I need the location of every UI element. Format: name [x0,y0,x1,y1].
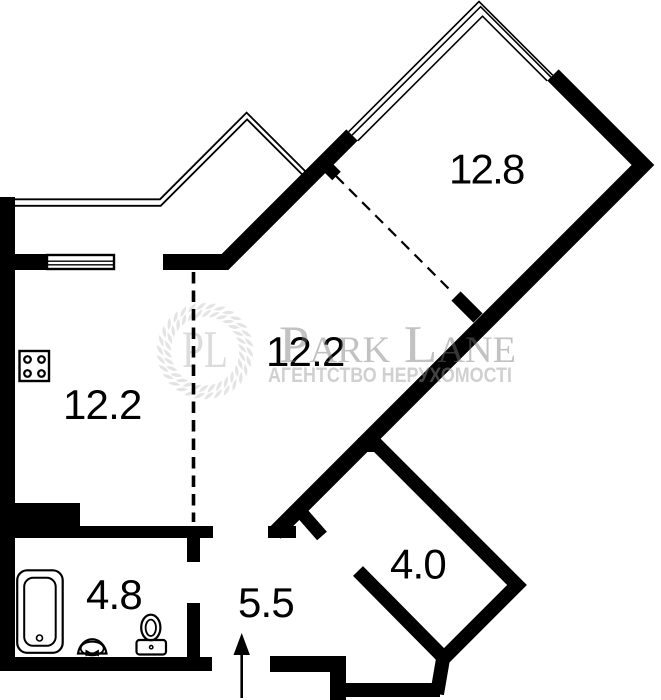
svg-text:12.8: 12.8 [449,146,524,193]
svg-text:4.0: 4.0 [390,541,446,588]
svg-text:4.8: 4.8 [86,571,142,618]
svg-text:12.2: 12.2 [63,381,142,428]
svg-text:АГЕНТСТВО НЕРУХОМОСТІ: АГЕНТСТВО НЕРУХОМОСТІ [268,363,512,387]
svg-text:PL: PL [182,321,228,379]
svg-text:5.5: 5.5 [238,579,294,626]
